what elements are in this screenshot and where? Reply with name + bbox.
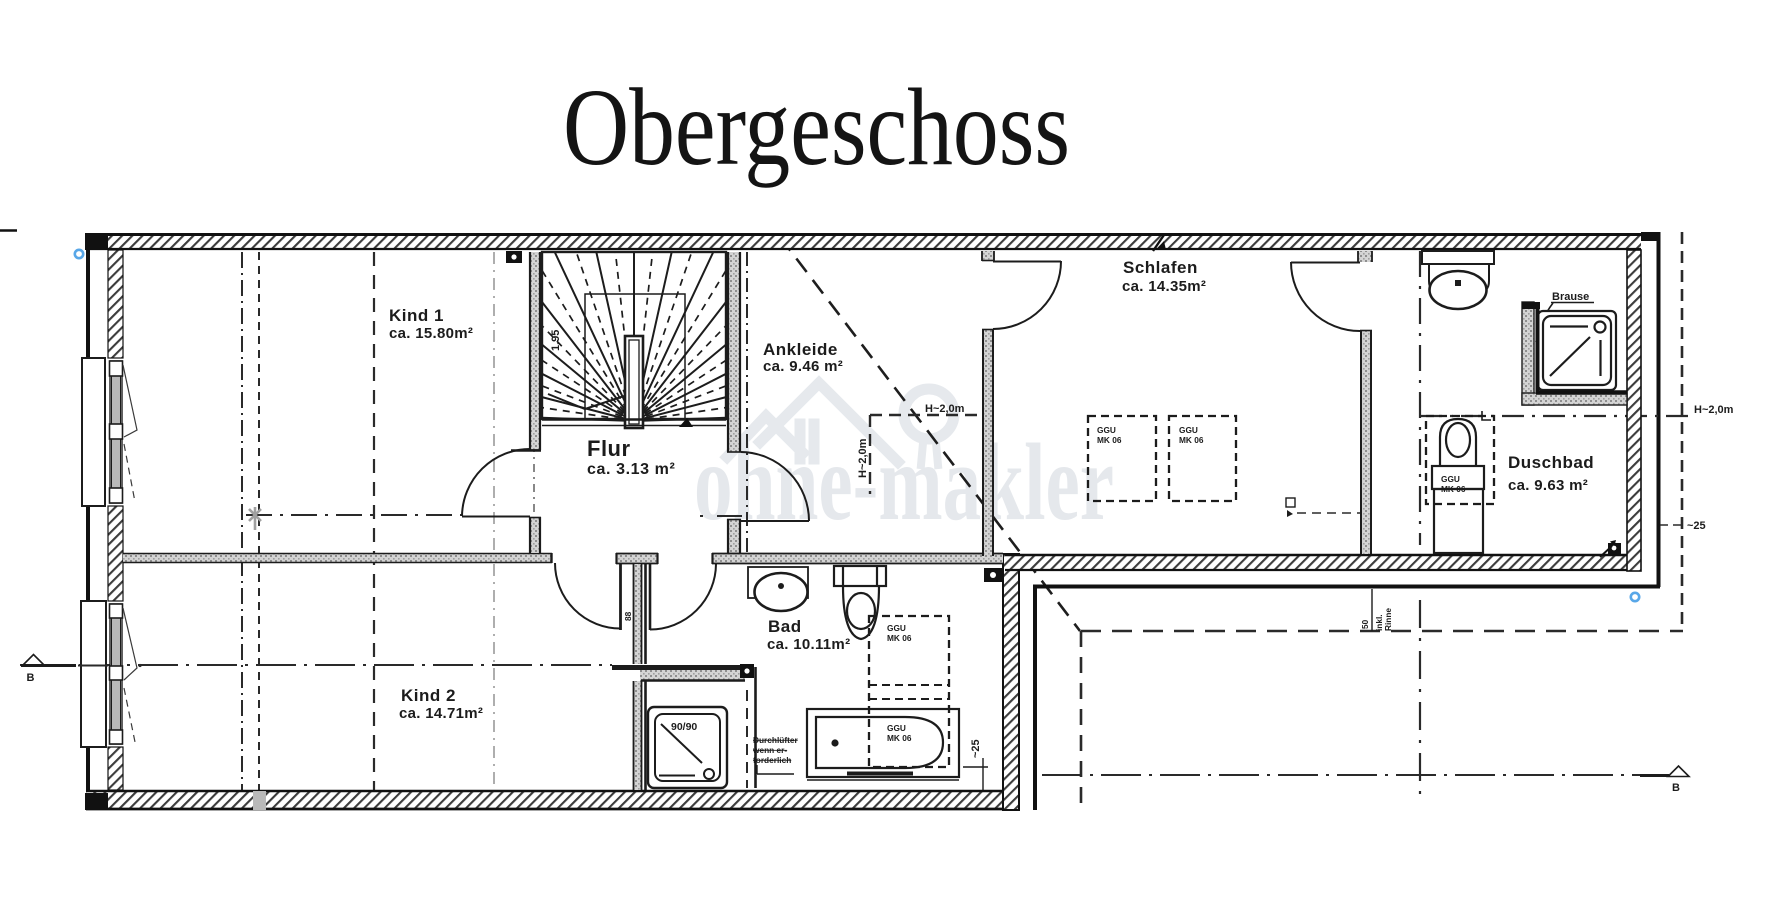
- svg-text:ca. 14.71m²: ca. 14.71m²: [399, 705, 483, 722]
- svg-text:Obergeschoss: Obergeschoss: [563, 66, 1070, 188]
- svg-text:ohne-makler: ohne-makler: [694, 421, 1114, 543]
- svg-text:Ankleide: Ankleide: [763, 340, 838, 359]
- svg-text:Flur: Flur: [587, 436, 631, 461]
- svg-text:ca. 14.35m²: ca. 14.35m²: [1122, 278, 1206, 295]
- svg-text:GGU: GGU: [1097, 425, 1116, 435]
- svg-text:Durchlüfter: Durchlüfter: [753, 735, 798, 745]
- svg-text:MK 06: MK 06: [1097, 435, 1122, 445]
- svg-text:GGU: GGU: [887, 723, 906, 733]
- svg-text:H~2,0m: H~2,0m: [1694, 404, 1734, 416]
- svg-text:~25: ~25: [970, 739, 982, 758]
- svg-text:Schlafen: Schlafen: [1123, 258, 1198, 277]
- svg-text:~25: ~25: [1687, 520, 1706, 532]
- svg-text:MK 06: MK 06: [887, 733, 912, 743]
- svg-text:90/90: 90/90: [671, 721, 697, 733]
- svg-text:wenn er-: wenn er-: [752, 745, 787, 755]
- svg-text:ca. 15.80m²: ca. 15.80m²: [389, 325, 473, 342]
- svg-text:ca. 9.63 m²: ca. 9.63 m²: [1508, 477, 1588, 494]
- svg-text:ca. 9.46 m²: ca. 9.46 m²: [763, 358, 843, 375]
- svg-text:MK 06: MK 06: [1179, 435, 1204, 445]
- svg-text:GGU: GGU: [1441, 474, 1460, 484]
- svg-text:Rinne: Rinne: [1383, 608, 1393, 631]
- svg-text:Kind 2: Kind 2: [401, 686, 456, 705]
- svg-text:ca. 10.11m²: ca. 10.11m²: [767, 636, 850, 653]
- svg-text:B: B: [1672, 782, 1680, 794]
- svg-text:H~2,0m: H~2,0m: [857, 438, 869, 478]
- svg-text:50: 50: [1360, 619, 1370, 629]
- svg-text:MK 06: MK 06: [887, 633, 912, 643]
- svg-text:Kind 1: Kind 1: [389, 306, 444, 325]
- svg-text:GGU: GGU: [887, 623, 906, 633]
- svg-text:1.95: 1.95: [550, 330, 562, 351]
- svg-text:forderlich: forderlich: [753, 755, 791, 765]
- svg-text:GGU: GGU: [1179, 425, 1198, 435]
- svg-text:MK 06: MK 06: [1441, 484, 1466, 494]
- svg-text:ca. 3.13 m²: ca. 3.13 m²: [587, 461, 675, 478]
- svg-text:Bad: Bad: [768, 617, 802, 636]
- svg-text:B: B: [27, 672, 35, 684]
- svg-text:H~2,0m: H~2,0m: [925, 403, 965, 415]
- svg-text:Brause: Brause: [1552, 291, 1589, 303]
- svg-text:Duschbad: Duschbad: [1508, 453, 1594, 472]
- svg-text:88: 88: [623, 611, 633, 621]
